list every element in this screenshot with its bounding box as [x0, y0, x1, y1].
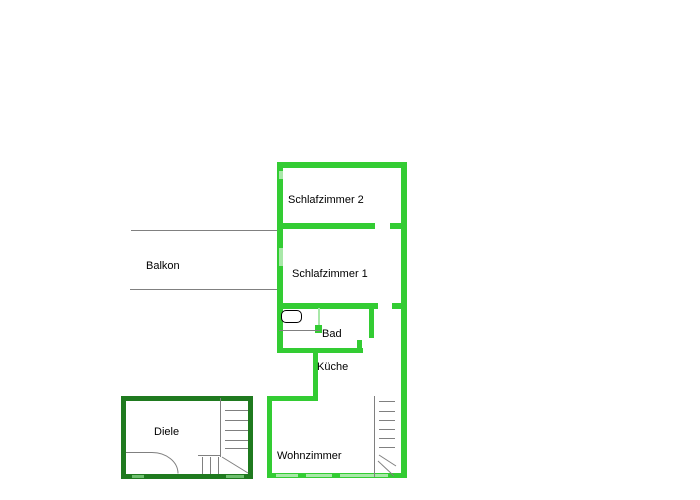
label-kueche: Küche	[317, 361, 348, 374]
label-bad: Bad	[322, 328, 342, 341]
wohnzimmer-stairs-treads	[379, 402, 395, 448]
floorplan-canvas: Schlafzimmer 2 Schlafzimmer 1 Balkon Bad…	[0, 0, 700, 500]
label-schlafzimmer2: Schlafzimmer 2	[288, 194, 364, 207]
stairs-overlay	[0, 0, 700, 500]
label-schlafzimmer1: Schlafzimmer 1	[292, 268, 368, 281]
label-balkon: Balkon	[146, 260, 180, 273]
diele-door-arc	[152, 453, 178, 474]
diele-stairs-lower-treads	[203, 457, 219, 474]
label-wohnzimmer: Wohnzimmer	[277, 450, 342, 463]
label-diele: Diele	[154, 426, 179, 439]
diele-stairs-diagonal	[222, 457, 248, 473]
diele-stairs-treads	[225, 411, 248, 449]
